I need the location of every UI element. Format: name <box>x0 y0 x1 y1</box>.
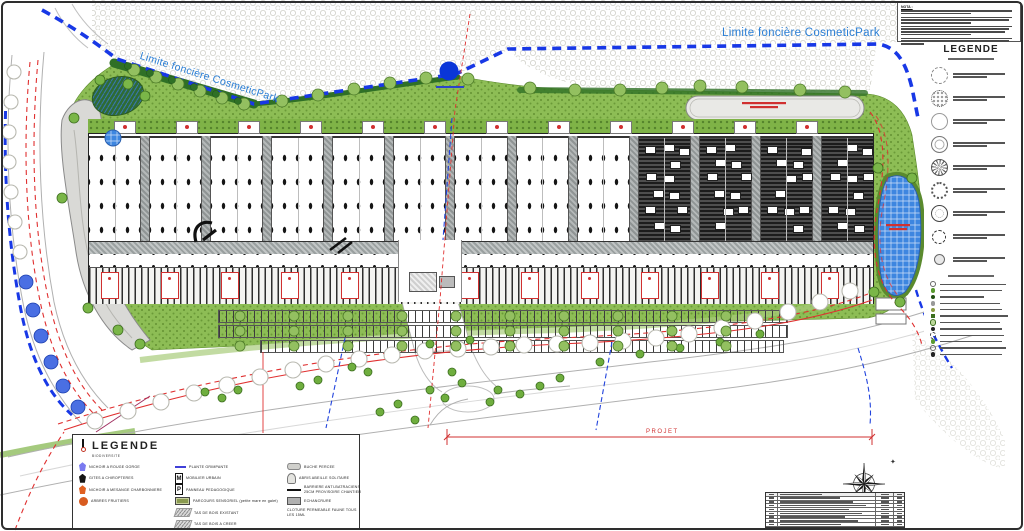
revision-table <box>765 492 905 528</box>
bio-legend-label: BUCHE PERCEE <box>304 465 335 469</box>
tree <box>667 326 677 336</box>
tree <box>71 400 85 414</box>
tree <box>312 89 324 101</box>
tree <box>667 341 677 351</box>
tree <box>582 335 598 351</box>
tree <box>516 337 532 353</box>
legend-item-tree-dashed-small <box>928 225 1014 248</box>
dot-pale <box>930 319 937 326</box>
bio-legend-label: PARCOURS SENSORIEL (petite mare en galet… <box>193 499 278 503</box>
basin-labels <box>742 102 910 230</box>
tree-dashed-outline <box>931 67 948 84</box>
tree <box>289 311 299 321</box>
tree <box>235 98 242 105</box>
legend-item-tree-ray-hatch <box>928 156 1014 179</box>
bio-legend-label: PANNEAU PEDAGOGIQUE <box>186 488 235 492</box>
tree <box>201 388 209 396</box>
bio-legend-label: PLANTE GRIMPANTE <box>189 465 228 469</box>
projet-dimension: PROJET <box>444 429 875 445</box>
tree <box>505 311 515 321</box>
tree <box>186 385 202 401</box>
bio-legend-label: ABRIS ABEILLE SOLITAIRE <box>299 476 349 480</box>
box-letter-icon: M <box>175 473 183 484</box>
tree <box>95 75 105 85</box>
nestbox-post-icon <box>79 439 87 452</box>
projet-label: PROJET <box>646 429 679 435</box>
tree-ray-hatch <box>931 159 948 176</box>
street-trees-bottom <box>87 283 858 429</box>
tree <box>343 326 353 336</box>
tree <box>8 215 22 229</box>
tree <box>318 356 334 372</box>
legend-biodiversity: LEGENDE BIODIVERSITE NICHOIR A ROUGE GOR… <box>72 434 360 529</box>
line-black-icon <box>287 489 301 491</box>
tree <box>505 326 515 336</box>
bio-legend-item: BARRIERE ANTI-BATRACIENS 25CM PROVISOIRE… <box>287 484 363 496</box>
bio-legend-item: BUCHE PERCEE <box>287 461 363 473</box>
tree <box>125 63 132 70</box>
legend-item-tree-outline-light <box>928 110 1014 133</box>
nichoir-orange-icon <box>79 485 86 494</box>
tree <box>420 72 432 84</box>
tree-gray-disc <box>934 254 945 265</box>
rect-green-icon <box>175 497 190 505</box>
dot-darkgreen <box>931 295 936 300</box>
bio-legend-label: GITES A CHIROPTERES <box>89 476 134 480</box>
legend-item-tree-flower-cluster <box>928 87 1014 110</box>
tree <box>13 245 27 259</box>
tree <box>296 382 304 390</box>
tree <box>466 336 474 344</box>
tree <box>343 341 353 351</box>
tree <box>169 77 176 84</box>
tree <box>235 341 245 351</box>
tree <box>219 377 235 393</box>
tree <box>494 386 502 394</box>
legend-section-bar <box>948 275 994 277</box>
bio-legend-label: ARBRES FRUITIERS <box>91 499 129 503</box>
tree <box>613 326 623 336</box>
bio-legend-item: PARCOURS SENSORIEL (petite mare en galet… <box>175 496 283 508</box>
legend-item-tree-double-ring <box>928 133 1014 156</box>
tree <box>34 329 48 343</box>
tree <box>348 363 356 371</box>
tree <box>556 374 564 382</box>
tree <box>614 84 626 96</box>
turning-marks <box>195 222 352 253</box>
tree <box>83 303 93 313</box>
tree <box>462 73 474 85</box>
tree <box>289 341 299 351</box>
tree <box>794 84 806 96</box>
tree <box>458 379 466 387</box>
tree <box>285 362 301 378</box>
tree <box>613 311 623 321</box>
tree <box>384 347 400 363</box>
notes-box: NOTA : <box>897 2 1021 42</box>
tree <box>234 386 242 394</box>
legend-vegetation-items <box>928 64 1014 271</box>
bio-legend-item: ARBRES FRUITIERS <box>79 496 171 508</box>
tree <box>69 113 79 123</box>
tree <box>44 355 58 369</box>
tree <box>2 155 16 169</box>
bio-legend-item: GITES A CHIROPTERES <box>79 473 171 485</box>
tree <box>147 70 154 77</box>
tree <box>842 283 858 299</box>
tree <box>252 369 268 385</box>
tree <box>348 83 360 95</box>
street-trees-left <box>2 65 27 259</box>
tree <box>213 91 220 98</box>
dot-outline <box>930 345 937 352</box>
bio-legend-label: ECHANCRURE <box>304 499 331 503</box>
legend-biodiversity-columns: NICHOIR A ROUGE GORGEGITES A CHIROPTERES… <box>79 461 353 530</box>
blue-grid-tree <box>105 130 121 146</box>
tree <box>873 163 883 173</box>
tree <box>113 325 123 335</box>
bio-legend-item: ECHANCRURE <box>287 496 363 508</box>
tree <box>483 339 499 355</box>
tree <box>569 84 581 96</box>
tree <box>57 193 67 203</box>
tree <box>721 341 731 351</box>
tree <box>235 311 245 321</box>
tree-target-ring <box>931 205 948 222</box>
tree <box>839 86 851 98</box>
tree <box>559 326 569 336</box>
bio-legend-label: NICHOIR A ROUGE GORGE <box>89 465 140 469</box>
tree-dotted-large <box>931 182 948 199</box>
legend-vegetation-small-items <box>928 281 1014 358</box>
tree <box>394 400 402 408</box>
tree <box>19 275 33 289</box>
tree <box>397 341 407 351</box>
tree <box>596 358 604 366</box>
dot-gray <box>931 301 936 306</box>
tree <box>907 173 917 183</box>
legend-small-item-dot-black <box>928 351 1014 357</box>
blue-survey-lines <box>326 118 871 430</box>
tree <box>448 368 456 376</box>
tree <box>636 350 644 358</box>
tree <box>4 95 18 109</box>
tree <box>314 376 322 384</box>
circle-orange-icon <box>79 497 88 506</box>
tree <box>451 326 461 336</box>
rect-gray-icon <box>287 497 301 505</box>
tree <box>343 311 353 321</box>
tree <box>426 340 434 348</box>
tree <box>747 313 763 329</box>
north-sparkle-icon: ✦ <box>890 458 896 466</box>
tree <box>736 81 748 93</box>
scattered-trees <box>201 330 764 424</box>
tree <box>397 326 407 336</box>
square-green <box>931 314 936 319</box>
tree <box>516 390 524 398</box>
tree <box>559 311 569 321</box>
tree <box>451 341 461 351</box>
dot-olive <box>931 308 936 313</box>
tree <box>486 398 494 406</box>
bio-legend-item: NICHOIR A ROUGE GORGE <box>79 461 171 473</box>
woodpile-icon <box>174 508 193 517</box>
tree <box>4 185 18 199</box>
legend-item-tree-dashed-outline <box>928 64 1014 87</box>
bio-legend-item: CLOTURE PERMEABLE FAUNE TOUS LES 15ML <box>287 507 363 519</box>
bio-legend-label: MOBILIER URBAIN <box>186 476 221 480</box>
revision-row <box>766 523 904 527</box>
tree <box>426 386 434 394</box>
tree <box>812 294 828 310</box>
legend-vegetation-title: LEGENDE <box>928 44 1014 55</box>
gite-black-icon <box>79 474 86 483</box>
tree <box>235 326 245 336</box>
tree <box>441 394 449 402</box>
bio-legend-item: NICHOIR A MESANGE CHARBONNIERE <box>79 484 171 496</box>
dot-green <box>931 288 936 293</box>
tree <box>505 341 515 351</box>
bio-legend-item: MMOBILIER URBAIN <box>175 473 283 485</box>
legend-item-tree-target-ring <box>928 202 1014 225</box>
dot-dashed <box>930 332 937 339</box>
legend-item-tree-dotted-large <box>928 179 1014 202</box>
legend-biodiversity-title: LEGENDE <box>92 440 159 452</box>
tree <box>2 125 16 139</box>
tree <box>376 408 384 416</box>
tree-dashed-small <box>932 230 946 244</box>
tree <box>191 84 198 91</box>
woodpile-icon <box>174 520 193 529</box>
bio-legend-item: ABRIS ABEILLE SOLITAIRE <box>287 473 363 485</box>
notes-heading: NOTA : <box>901 5 1017 9</box>
bio-legend-label: TAS DE BOIS A CREER <box>194 522 237 526</box>
bio-legend-item: PLANTE GRIMPANTE <box>175 461 283 473</box>
legend-biodiversity-subtitle: BIODIVERSITE <box>92 454 353 458</box>
tree-double-ring <box>931 136 948 153</box>
boundary-label-top: Limite foncière CosmeticPark <box>722 27 880 39</box>
bio-legend-label: CLOTURE PERMEABLE FAUNE TOUS LES 15ML <box>287 508 363 517</box>
legend-item-tree-gray-disc <box>928 248 1014 271</box>
nichoir-blue-icon <box>79 462 86 471</box>
notes-text-lines <box>901 10 1017 44</box>
dot-black <box>931 352 936 357</box>
tree <box>218 394 226 402</box>
tree-outline-light <box>931 113 948 130</box>
tree <box>411 416 419 424</box>
tree <box>135 339 145 349</box>
bio-legend-label: NICHOIR A MESANGE CHARBONNIERE <box>89 488 162 492</box>
tree <box>140 91 150 101</box>
tree <box>613 341 623 351</box>
line-blue-icon <box>175 466 186 468</box>
tree-flower-cluster <box>931 90 948 107</box>
tree <box>869 287 879 297</box>
tree <box>895 297 905 307</box>
bio-legend-item: TAS DE BOIS EXISTANT <box>175 507 283 519</box>
site-plan-canvas: PROJET Limite foncière CosmeticPark Limi… <box>0 0 1024 531</box>
dot-green <box>931 339 936 344</box>
tree <box>364 368 372 376</box>
tree <box>756 330 764 338</box>
bio-legend-label: TAS DE BOIS EXISTANT <box>194 511 239 515</box>
hive-icon <box>287 473 296 484</box>
tree <box>7 65 21 79</box>
bio-legend-item: PPANNEAU PEDAGOGIQUE <box>175 484 283 496</box>
tree <box>289 326 299 336</box>
legend-vegetation: LEGENDE <box>924 42 1018 336</box>
tree <box>536 382 544 390</box>
tree <box>656 82 668 94</box>
tree <box>524 82 536 94</box>
tree <box>721 326 731 336</box>
dot-black <box>931 327 936 332</box>
tree <box>721 311 731 321</box>
tree <box>56 379 70 393</box>
tree <box>780 304 796 320</box>
bio-legend-item: TAS DE BOIS A CREER <box>175 519 283 531</box>
dot-outline <box>930 281 937 288</box>
tree <box>667 311 677 321</box>
tree <box>559 341 569 351</box>
tree <box>451 311 461 321</box>
tree <box>87 413 103 429</box>
bio-legend-label: BARRIERE ANTI-BATRACIENS 25CM PROVISOIRE… <box>304 485 363 494</box>
tree <box>694 80 706 92</box>
box-letter-icon: P <box>175 484 183 495</box>
tree <box>648 330 664 346</box>
tree <box>120 403 136 419</box>
log-icon <box>287 463 301 470</box>
tree <box>153 394 169 410</box>
tree <box>26 303 40 317</box>
tree <box>384 77 396 89</box>
legend-vegetation-subtitle-bar <box>948 58 994 60</box>
tree <box>681 326 697 342</box>
tree <box>397 311 407 321</box>
tree <box>123 79 133 89</box>
